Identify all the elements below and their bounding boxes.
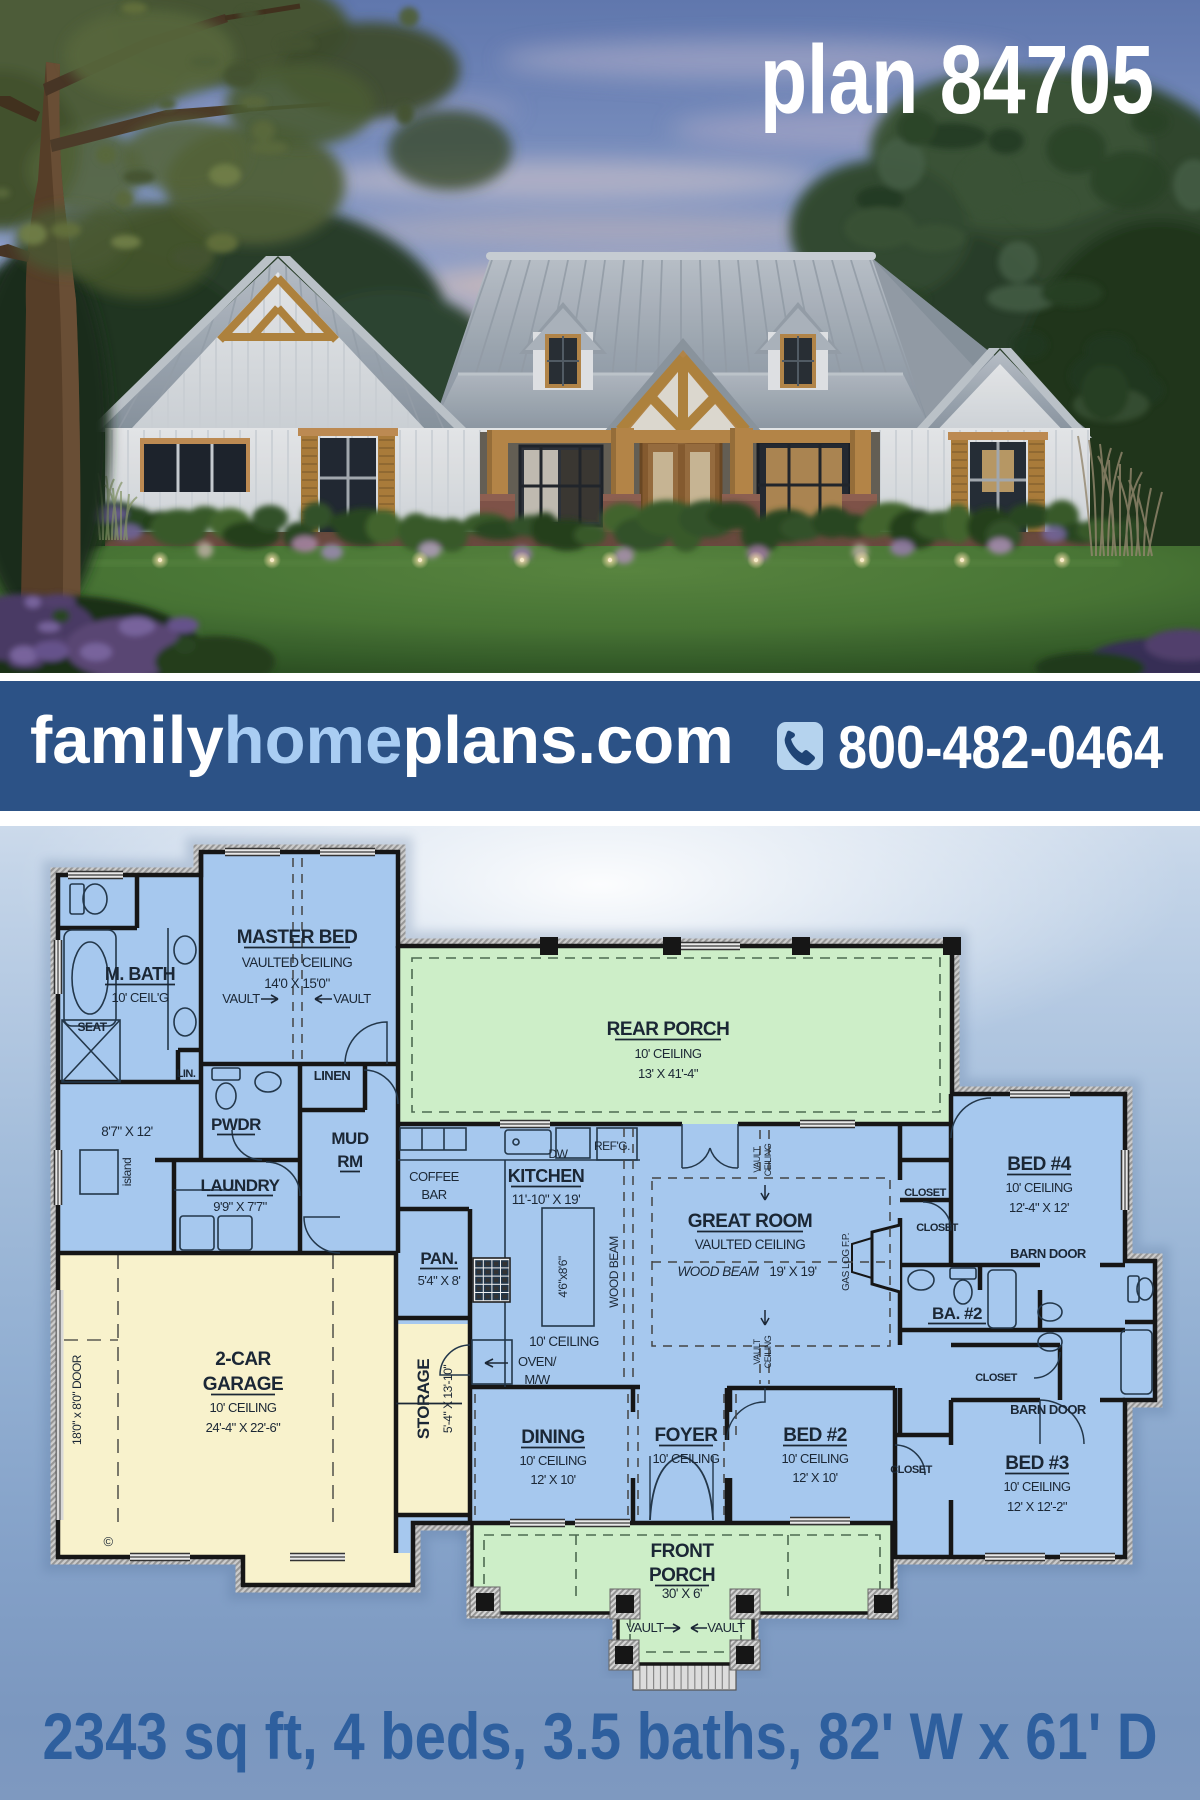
svg-text:BED #4: BED #4 — [1007, 1154, 1071, 1175]
svg-text:WOOD BEAM: WOOD BEAM — [607, 1236, 621, 1308]
svg-text:LAUNDRY: LAUNDRY — [201, 1176, 281, 1195]
svg-text:CLOSET: CLOSET — [904, 1187, 946, 1199]
svg-text:LINEN: LINEN — [314, 1068, 351, 1083]
svg-text:BARN DOOR: BARN DOOR — [1010, 1402, 1087, 1417]
svg-text:CLOSET: CLOSET — [975, 1372, 1017, 1384]
svg-text:13' X 41'-4": 13' X 41'-4" — [638, 1066, 699, 1081]
svg-text:2-CAR: 2-CAR — [215, 1349, 271, 1370]
svg-text:VAULT: VAULT — [333, 991, 371, 1006]
svg-text:FOYER: FOYER — [655, 1425, 719, 1446]
svg-text:8'7" X 12': 8'7" X 12' — [101, 1124, 153, 1139]
svg-text:OVEN/: OVEN/ — [518, 1354, 557, 1369]
svg-text:10' CEILING: 10' CEILING — [781, 1451, 848, 1466]
svg-text:REF'G.: REF'G. — [594, 1139, 630, 1153]
svg-text:PWDR: PWDR — [211, 1115, 261, 1134]
svg-text:10' CEILING: 10' CEILING — [1005, 1180, 1072, 1195]
svg-text:BED #2: BED #2 — [783, 1425, 847, 1446]
svg-text:BED #3: BED #3 — [1005, 1453, 1069, 1474]
svg-text:©: © — [103, 1534, 113, 1549]
svg-text:10' CEILING: 10' CEILING — [529, 1334, 599, 1349]
svg-text:KITCHEN: KITCHEN — [508, 1166, 585, 1186]
svg-text:PAN.: PAN. — [420, 1249, 457, 1268]
svg-text:19' X 19': 19' X 19' — [769, 1264, 816, 1279]
svg-text:VAULT: VAULT — [707, 1620, 745, 1635]
svg-text:VAULTED CEILING: VAULTED CEILING — [695, 1237, 806, 1252]
svg-text:11'-10" X 19': 11'-10" X 19' — [512, 1192, 581, 1207]
svg-text:REAR PORCH: REAR PORCH — [607, 1019, 730, 1040]
svg-text:plan 84705: plan 84705 — [760, 25, 1154, 134]
svg-text:10' CEILING: 10' CEILING — [1003, 1479, 1070, 1494]
svg-text:10' CEILING: 10' CEILING — [652, 1451, 719, 1466]
svg-text:VAULTED CEILING: VAULTED CEILING — [242, 955, 353, 970]
svg-text:VAULT: VAULT — [222, 991, 260, 1006]
svg-text:MUD: MUD — [331, 1129, 368, 1148]
svg-text:VAULT: VAULT — [752, 1338, 762, 1364]
svg-text:COFFEE: COFFEE — [409, 1169, 460, 1184]
svg-text:4'6"x8'6": 4'6"x8'6" — [556, 1256, 570, 1298]
svg-text:12' X 10': 12' X 10' — [792, 1470, 837, 1485]
svg-text:5'4" X 8': 5'4" X 8' — [418, 1273, 461, 1288]
svg-text:BAR: BAR — [421, 1187, 446, 1202]
svg-text:M. BATH: M. BATH — [105, 964, 175, 984]
svg-text:island: island — [120, 1158, 134, 1186]
svg-text:24'-4" X 22'-6": 24'-4" X 22'-6" — [206, 1420, 282, 1435]
svg-text:GARAGE: GARAGE — [203, 1374, 283, 1395]
svg-text:5'-4" X 13'-10": 5'-4" X 13'-10" — [441, 1365, 455, 1434]
svg-text:10' CEILING: 10' CEILING — [634, 1046, 701, 1061]
svg-text:10' CEILING: 10' CEILING — [519, 1453, 586, 1468]
svg-text:10' CEIL'G: 10' CEIL'G — [111, 990, 168, 1005]
svg-text:CEILING: CEILING — [763, 1143, 773, 1176]
svg-text:STORAGE: STORAGE — [414, 1359, 433, 1439]
svg-text:DINING: DINING — [521, 1427, 585, 1448]
svg-text:GREAT ROOM: GREAT ROOM — [688, 1211, 812, 1232]
svg-text:CLOSET: CLOSET — [916, 1222, 958, 1234]
svg-text:18'0" x 8'0" DOOR: 18'0" x 8'0" DOOR — [70, 1354, 84, 1445]
svg-text:30' X 6': 30' X 6' — [662, 1586, 702, 1601]
svg-text:BA. #2: BA. #2 — [932, 1304, 982, 1323]
svg-text:12'-4" X 12': 12'-4" X 12' — [1009, 1200, 1069, 1215]
svg-text:GAS LOG F.P.: GAS LOG F.P. — [841, 1233, 852, 1291]
svg-text:BARN DOOR: BARN DOOR — [1010, 1246, 1087, 1261]
svg-text:M/W: M/W — [524, 1372, 550, 1387]
svg-text:PORCH: PORCH — [649, 1565, 715, 1586]
svg-text:LIN.: LIN. — [177, 1068, 196, 1080]
svg-text:SEAT: SEAT — [77, 1020, 107, 1034]
svg-text:CEILING: CEILING — [763, 1335, 773, 1368]
svg-text:WOOD BEAM: WOOD BEAM — [677, 1264, 759, 1279]
svg-text:DW: DW — [549, 1147, 569, 1161]
svg-text:MASTER BED: MASTER BED — [237, 927, 358, 948]
svg-text:9'9" X 7'7": 9'9" X 7'7" — [213, 1199, 267, 1214]
svg-text:VAULT: VAULT — [626, 1620, 664, 1635]
svg-text:12' X 10': 12' X 10' — [530, 1472, 575, 1487]
svg-text:CLOSET: CLOSET — [890, 1464, 932, 1476]
svg-text:12' X 12'-2": 12' X 12'-2" — [1007, 1499, 1068, 1514]
svg-text:VAULT: VAULT — [752, 1146, 762, 1172]
svg-text:RM: RM — [337, 1152, 363, 1171]
svg-text:14'0 X 15'0": 14'0 X 15'0" — [264, 976, 330, 991]
svg-text:10' CEILING: 10' CEILING — [209, 1400, 276, 1415]
svg-text:FRONT: FRONT — [651, 1541, 715, 1562]
